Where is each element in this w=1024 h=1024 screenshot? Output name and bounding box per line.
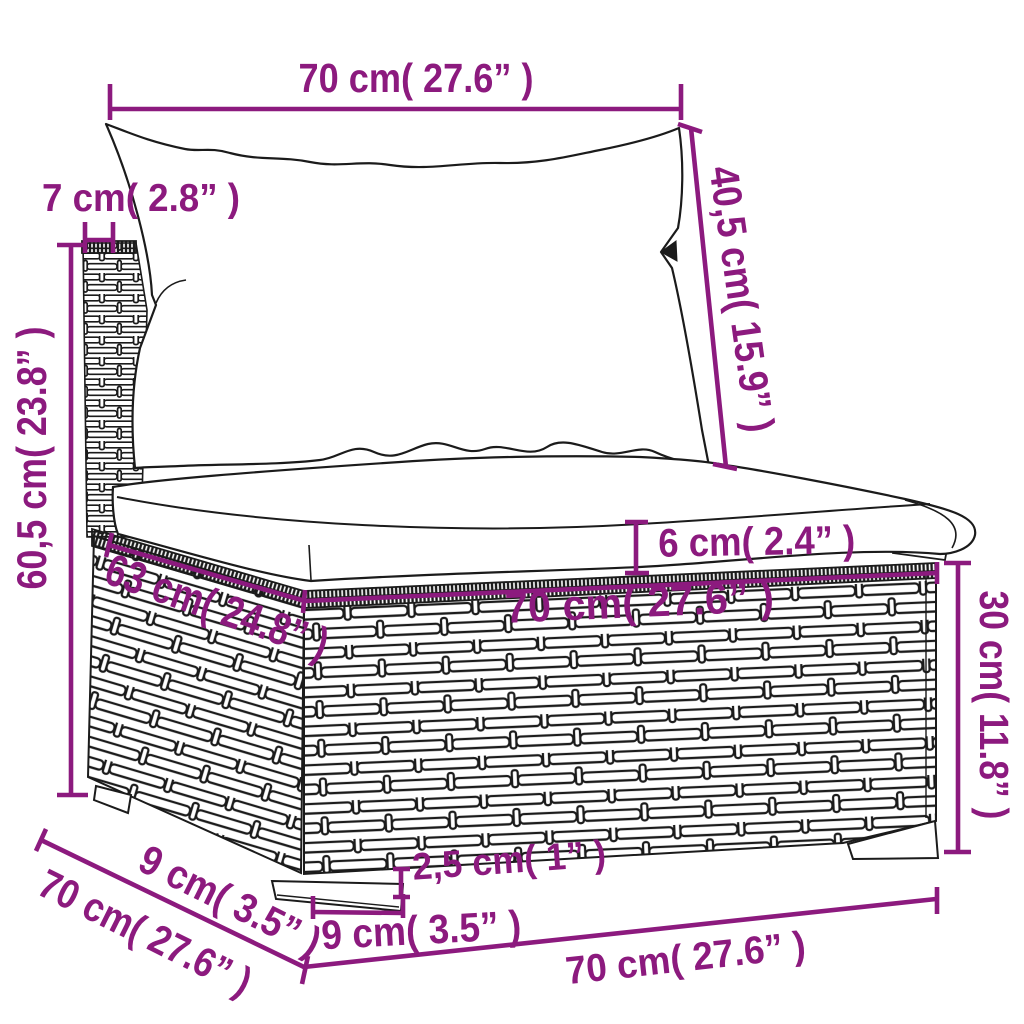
svg-text:70 cm( 27.6” ): 70 cm( 27.6” ) — [299, 55, 534, 101]
svg-text:60,5 cm( 23.8” ): 60,5 cm( 23.8” ) — [8, 327, 55, 590]
svg-text:7 cm( 2.8” ): 7 cm( 2.8” ) — [42, 177, 240, 220]
svg-text:6 cm( 2.4” ): 6 cm( 2.4” ) — [658, 518, 856, 565]
svg-text:30 cm( 11.8” ): 30 cm( 11.8” ) — [971, 591, 1017, 820]
